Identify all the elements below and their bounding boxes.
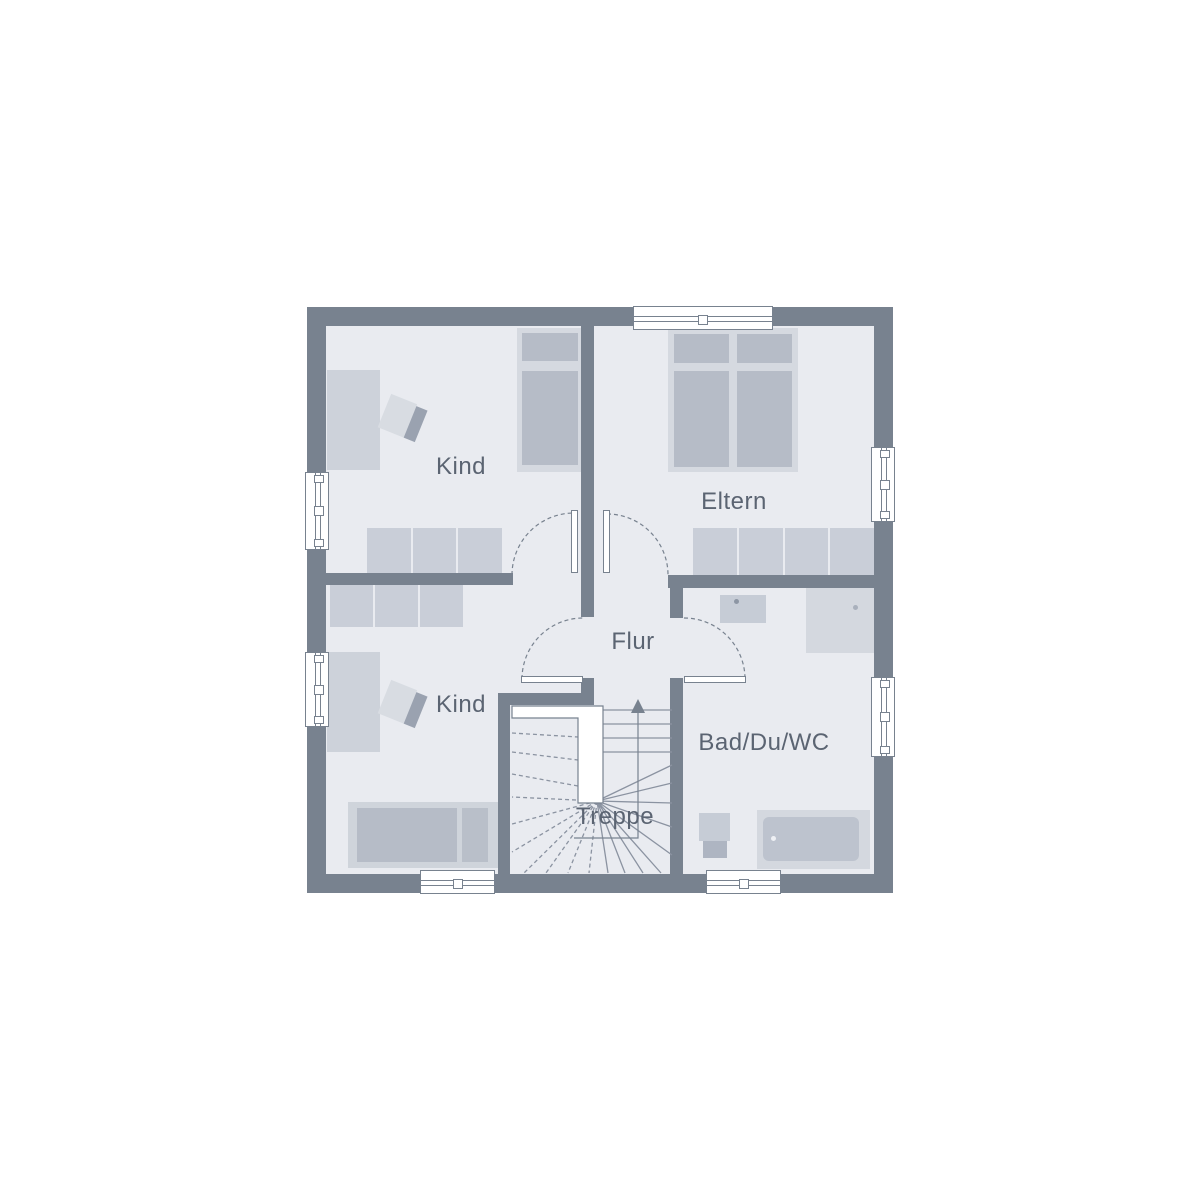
room-label-treppe: Treppe [576,803,654,831]
door-arc-eltern [607,514,668,575]
door-leaf-eltern [603,510,610,573]
room-label-kind-bottom: Kind [436,691,486,719]
window-mullion [314,716,324,724]
window-mullion [453,879,463,889]
window-mullion [314,655,324,663]
window-right-upper [871,447,895,522]
room-label-flur: Flur [611,628,654,656]
door-arc-kind-bottom [522,618,583,679]
window-mullion [880,511,890,519]
door-arc-bad [684,618,745,679]
window-mullion [314,685,324,695]
window-left-lower [305,652,329,727]
stairs-and-doors-overlay [0,0,1200,1200]
window-left-upper [305,472,329,550]
window-mullion [314,539,324,547]
room-label-eltern: Eltern [701,488,767,516]
window-mullion [880,712,890,722]
door-arc-kind-top [512,513,574,575]
door-leaf-kind-top [571,510,578,573]
door-leaf-kind-bottom [521,676,583,683]
window-mullion [314,506,324,516]
floorplan-canvas: Kind Eltern Flur Kind Bad/Du/WC Treppe [0,0,1200,1200]
room-label-kind-top: Kind [436,453,486,481]
window-mullion [880,480,890,490]
stair-treads-solid [597,710,672,873]
window-mullion [880,450,890,458]
window-right-lower [871,677,895,757]
stair-newel-rail [512,706,603,803]
stair-up-arrow-icon [631,699,645,713]
door-leaf-bad [684,676,746,683]
window-mullion [880,746,890,754]
window-mullion [698,315,708,325]
window-mullion [739,879,749,889]
window-top [633,306,773,330]
window-mullion [880,680,890,688]
room-label-bad: Bad/Du/WC [698,729,829,757]
window-bottom-right [706,870,781,894]
window-bottom-left [420,870,495,894]
window-mullion [314,475,324,483]
